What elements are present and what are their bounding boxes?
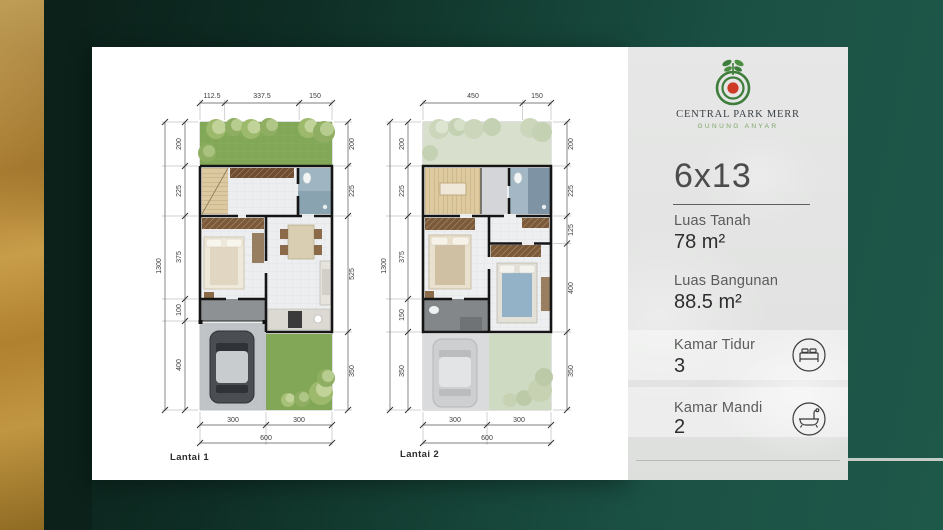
dim-label: 125 [568, 224, 575, 236]
dim-label: 600 [481, 435, 493, 442]
dim-label: 150 [531, 93, 543, 100]
dim-label: 400 [176, 359, 183, 371]
dim-label: 350 [568, 365, 575, 377]
corridor [481, 168, 507, 214]
dim-label: 112.5 [204, 93, 221, 100]
kamar-tidur-value: 3 [674, 355, 685, 378]
kamar-mandi-label: Kamar Mandi [674, 400, 762, 416]
plan-label-lantai-2: Lantai 2 [400, 449, 439, 460]
dim-label: 525 [349, 268, 356, 280]
car-faded [433, 339, 477, 407]
terrace [200, 299, 266, 321]
dark-green-band [44, 0, 92, 530]
decor-line [848, 458, 943, 461]
bathtub-icon [789, 399, 829, 439]
dim-label: 200 [568, 138, 575, 150]
dim-label: 400 [568, 282, 575, 294]
plan-label-lantai-1: Lantai 1 [170, 452, 209, 463]
carport-faded [423, 334, 489, 410]
kamar-tidur-label: Kamar Tidur [674, 337, 755, 353]
dim-label: 200 [176, 138, 183, 150]
floorplans-canvas: 112.5 337.5 150 200 225 375 100 400 1300… [92, 47, 628, 480]
bathroom [298, 168, 332, 214]
stairs [202, 168, 228, 214]
dim-label: 300 [513, 417, 525, 424]
floorplan-lantai-1: 112.5 337.5 150 200 225 375 100 400 1300… [156, 93, 356, 463]
dim-label: 337.5 [253, 93, 271, 100]
dim-label: 375 [399, 251, 406, 263]
front-garden-faded [422, 118, 552, 166]
carport [200, 323, 266, 410]
bathroom-3 [423, 299, 489, 332]
stairs-2 [425, 168, 481, 214]
dim-label: 150 [309, 93, 321, 100]
floorplan-lantai-2: 450 150 200 225 375 150 350 1300 200 225… [381, 93, 575, 460]
luas-bangunan-value: 88.5 m² [674, 291, 742, 314]
brand-location: GUNUNG ANYAR [628, 123, 848, 130]
wardrobe [230, 168, 294, 178]
dim-label: 600 [260, 435, 272, 442]
bathroom-2 [509, 168, 551, 214]
dim-label: 300 [449, 417, 461, 424]
dim-label: 375 [176, 251, 183, 263]
dim-label: 225 [349, 185, 356, 197]
panel-footer-line [636, 460, 840, 461]
dim-label: 200 [399, 138, 406, 150]
dim-label: 150 [399, 309, 406, 321]
bed-icon [789, 335, 829, 375]
dim-label: 200 [349, 138, 356, 150]
dim-label: 300 [293, 417, 305, 424]
central-park-merr-logo [701, 55, 765, 113]
front-garden [198, 118, 335, 166]
dim-label: 300 [227, 417, 239, 424]
dim-label: 225 [176, 185, 183, 197]
info-panel: CENTRAL PARK MERR GUNUNG ANYAR 6x13 Luas… [628, 47, 848, 480]
dim-label: 350 [399, 365, 406, 377]
dim-label: 1300 [381, 258, 388, 274]
gold-accent-strip [0, 0, 44, 530]
dim-label: 225 [568, 185, 575, 197]
luas-tanah-label: Luas Tanah [674, 213, 751, 229]
luas-bangunan-label: Luas Bangunan [674, 273, 778, 289]
luas-tanah-value: 78 m² [674, 231, 725, 254]
side-garden-faded [489, 334, 553, 410]
dim-label: 225 [399, 185, 406, 197]
logo-rings-icon [717, 72, 749, 104]
car [210, 331, 254, 403]
side-garden [266, 334, 335, 410]
brand-name: CENTRAL PARK MERR [628, 109, 848, 120]
divider-line [673, 204, 810, 205]
dim-label: 1300 [156, 258, 163, 274]
dim-label: 100 [176, 304, 183, 316]
dim-label: 450 [467, 93, 479, 100]
dim-label: 350 [349, 365, 356, 377]
kamar-mandi-value: 2 [674, 416, 685, 439]
slide: 112.5 337.5 150 200 225 375 100 400 1300… [0, 0, 943, 530]
unit-size-title: 6x13 [674, 157, 752, 196]
